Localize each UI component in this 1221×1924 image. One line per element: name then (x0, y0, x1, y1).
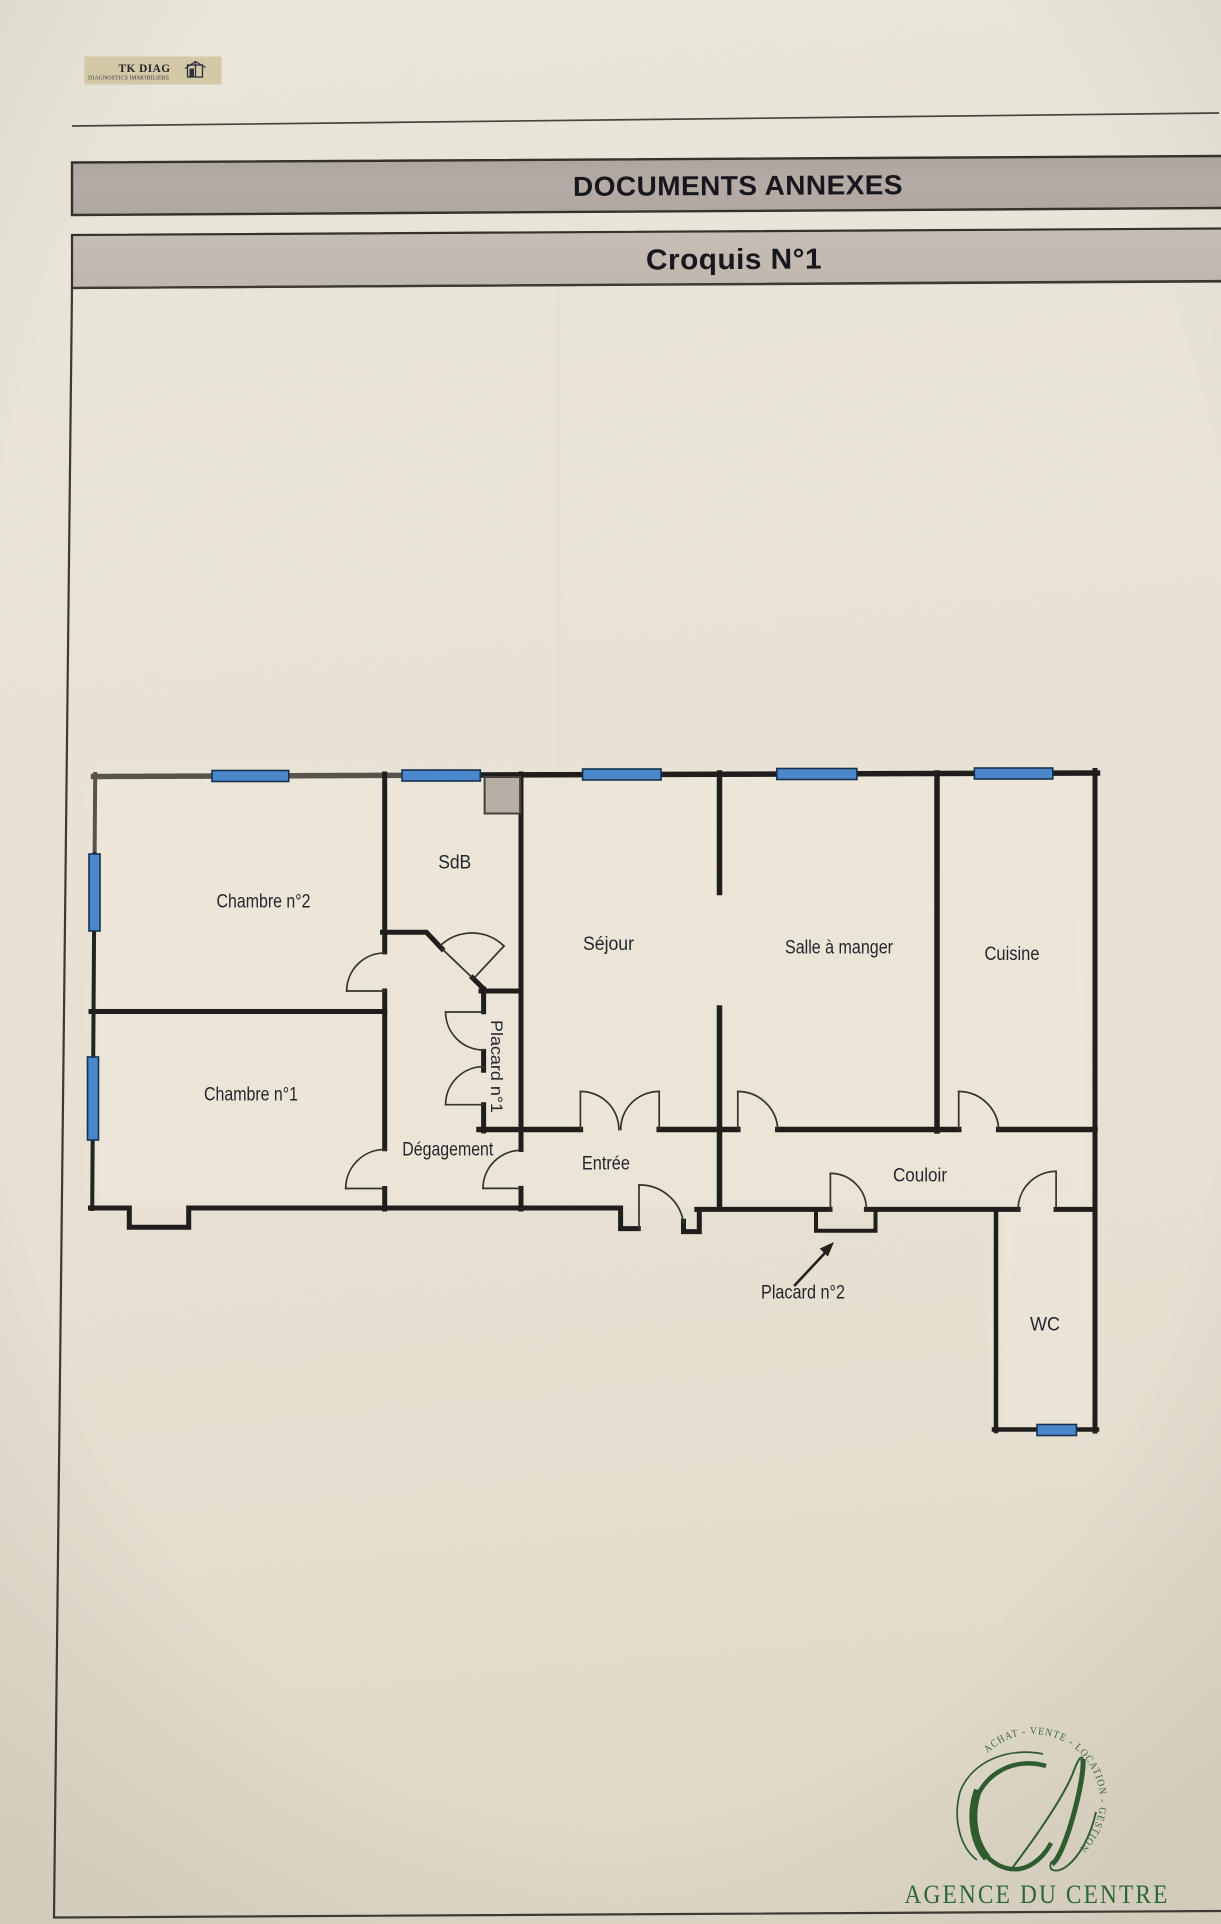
svg-text:DIAGNOSTICS IMMOBILIERS: DIAGNOSTICS IMMOBILIERS (88, 76, 169, 82)
svg-text:DOCUMENTS ANNEXES: DOCUMENTS ANNEXES (573, 169, 903, 202)
svg-text:WC: WC (1030, 1315, 1060, 1336)
svg-text:Salle à manger: Salle à manger (785, 938, 894, 959)
svg-text:Placard n°1: Placard n°1 (487, 1020, 506, 1113)
svg-text:Séjour: Séjour (583, 934, 635, 955)
svg-text:Chambre n°1: Chambre n°1 (204, 1085, 298, 1106)
svg-text:Cuisine: Cuisine (985, 944, 1040, 965)
svg-text:Croquis N°1: Croquis N°1 (646, 244, 822, 277)
svg-text:AGENCE DU CENTRE: AGENCE DU CENTRE (905, 1880, 1170, 1909)
svg-text:Couloir: Couloir (893, 1166, 948, 1187)
svg-text:TK DIAG: TK DIAG (119, 63, 171, 75)
svg-text:Placard n°2: Placard n°2 (761, 1283, 845, 1304)
svg-text:Chambre n°2: Chambre n°2 (217, 892, 311, 913)
svg-text:Dégagement: Dégagement (402, 1140, 494, 1161)
svg-text:Entrée: Entrée (582, 1154, 630, 1175)
svg-text:SdB: SdB (438, 853, 471, 874)
